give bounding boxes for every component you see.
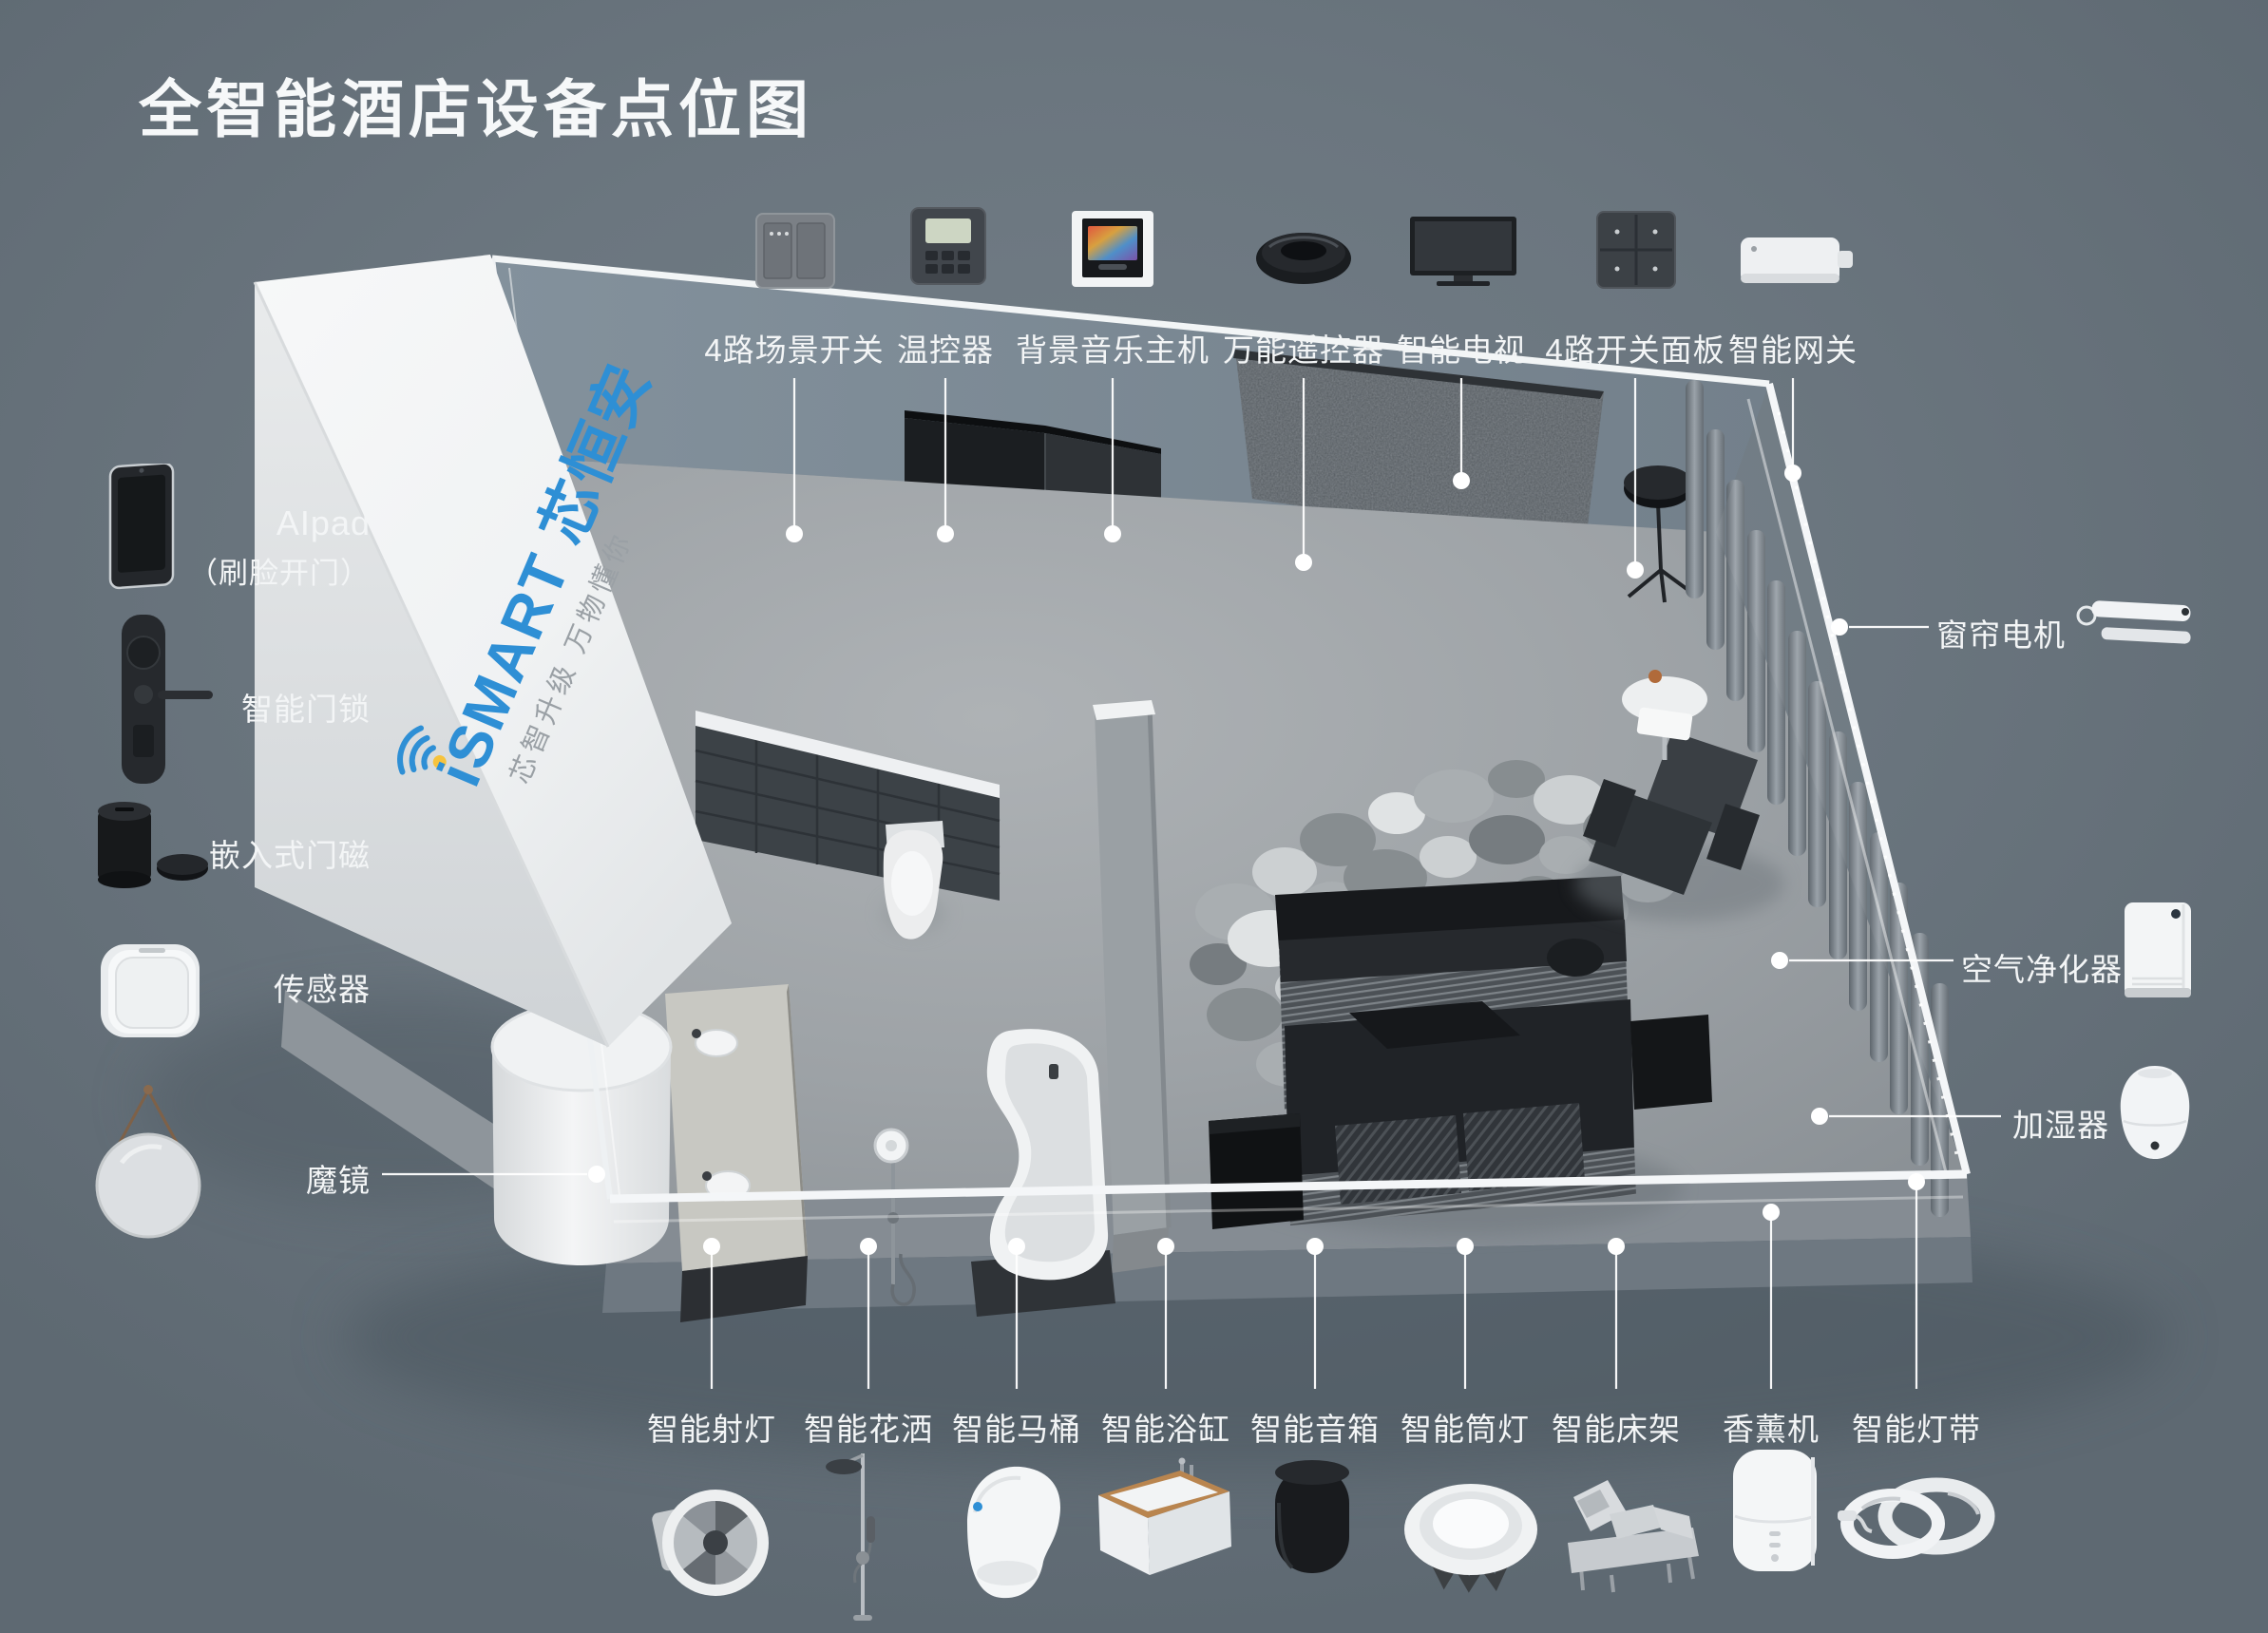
bathtub-icon: [1091, 1457, 1235, 1588]
legend-label-door-lock: 智能门锁: [241, 684, 371, 730]
aroma-diffuser-icon: [1722, 1444, 1828, 1581]
legend-label-speaker: 智能音箱: [1250, 1404, 1380, 1450]
music-host-icon: [1070, 209, 1155, 289]
universal-remote-icon: [1252, 226, 1355, 287]
air-purifier-icon: [2121, 899, 2197, 1005]
legend-label-music-host: 背景音乐主机: [1016, 325, 1210, 370]
light-strip-icon: [1834, 1461, 2001, 1577]
legend-label-downlight: 智能筒灯: [1401, 1404, 1530, 1450]
legend-label-light-strip: 智能灯带: [1852, 1404, 1981, 1450]
spotlight-icon: [649, 1465, 769, 1617]
room-toilet: [882, 821, 946, 940]
legend-label-thermostat: 温控器: [897, 325, 994, 370]
legend-label-gateway: 智能网关: [1728, 325, 1858, 370]
humidifier-icon: [2113, 1062, 2197, 1167]
scene-switch-icon: [753, 211, 837, 291]
sensor-icon: [97, 939, 207, 1043]
switch-panel-icon: [1594, 209, 1678, 291]
legend-label-sensor: 传感器: [274, 964, 371, 1010]
downlight-icon: [1401, 1471, 1541, 1600]
legend-label-scene-switch: 4路场景开关: [704, 325, 884, 370]
legend-label-humidifier: 加湿器: [2012, 1100, 2109, 1146]
toilet-icon: [946, 1455, 1074, 1609]
vanity: [665, 984, 808, 1322]
legend-label-smart-tv: 智能电视: [1397, 325, 1526, 370]
legend-label-air-purifier: 空气净化器: [1961, 944, 2123, 990]
legend-label-curtain-motor: 窗帘电机: [1936, 610, 2066, 655]
gateway-icon: [1739, 232, 1855, 291]
speaker-icon: [1266, 1455, 1359, 1581]
bed-frame-icon: [1554, 1469, 1708, 1594]
legend-label-universal-remote: 万能遥控器: [1223, 325, 1384, 370]
legend-label-bathtub: 智能浴缸: [1101, 1404, 1230, 1450]
shower-icon: [823, 1442, 903, 1624]
curtain-motor-icon: [2073, 591, 2197, 652]
aipad-icon: [105, 464, 184, 597]
legend-sublabel-aipad: （刷脸开门）: [188, 549, 371, 592]
legend-label-magic-mirror: 魔镜: [306, 1155, 371, 1201]
legend-label-spotlight: 智能射灯: [647, 1404, 776, 1450]
legend-label-aroma-diffuser: 香薰机: [1723, 1404, 1820, 1450]
legend-label-toilet: 智能马桶: [952, 1404, 1081, 1450]
door-lock-icon: [112, 613, 219, 788]
thermostat-icon: [908, 205, 988, 287]
poster: iSMART 芯恒安 芯智升级 万物懂你 全智能酒店设备点位图: [0, 0, 2268, 1633]
legend-label-door-magnet: 嵌入式门磁: [209, 830, 371, 876]
legend-label-switch-panel: 4路开关面板: [1545, 325, 1725, 370]
door-magnet-icon: [90, 796, 212, 891]
legend-label-bed-frame: 智能床架: [1552, 1404, 1681, 1450]
page-title: 全智能酒店设备点位图: [139, 59, 813, 150]
magic-mirror-icon: [93, 1081, 203, 1241]
shower-pod: [492, 1003, 671, 1265]
smart-tv-icon: [1408, 215, 1518, 293]
legend-label-aipad: AIpad （刷脸开门）: [188, 503, 371, 592]
